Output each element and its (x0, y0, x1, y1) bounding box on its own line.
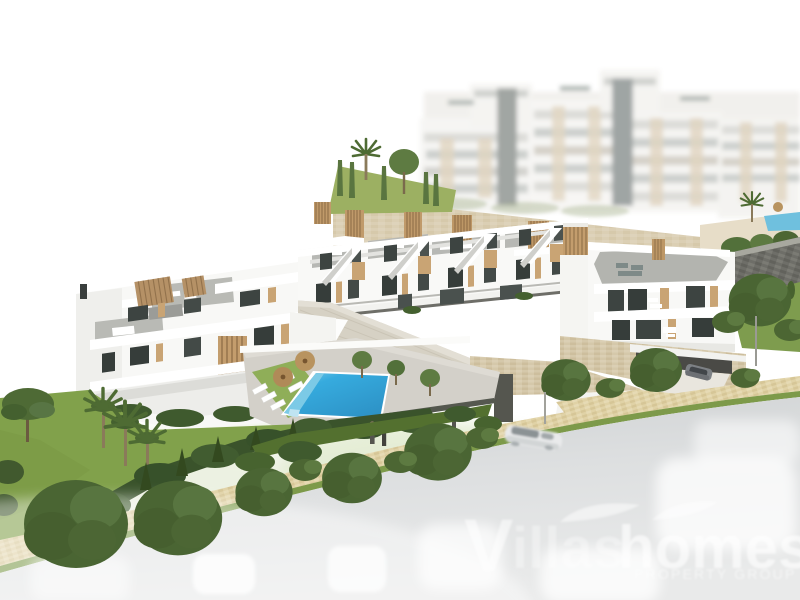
svg-text:PROPERTY GROUP: PROPERTY GROUP (634, 566, 797, 582)
svg-text:illas: illas (512, 516, 625, 581)
svg-text:V: V (464, 504, 513, 587)
